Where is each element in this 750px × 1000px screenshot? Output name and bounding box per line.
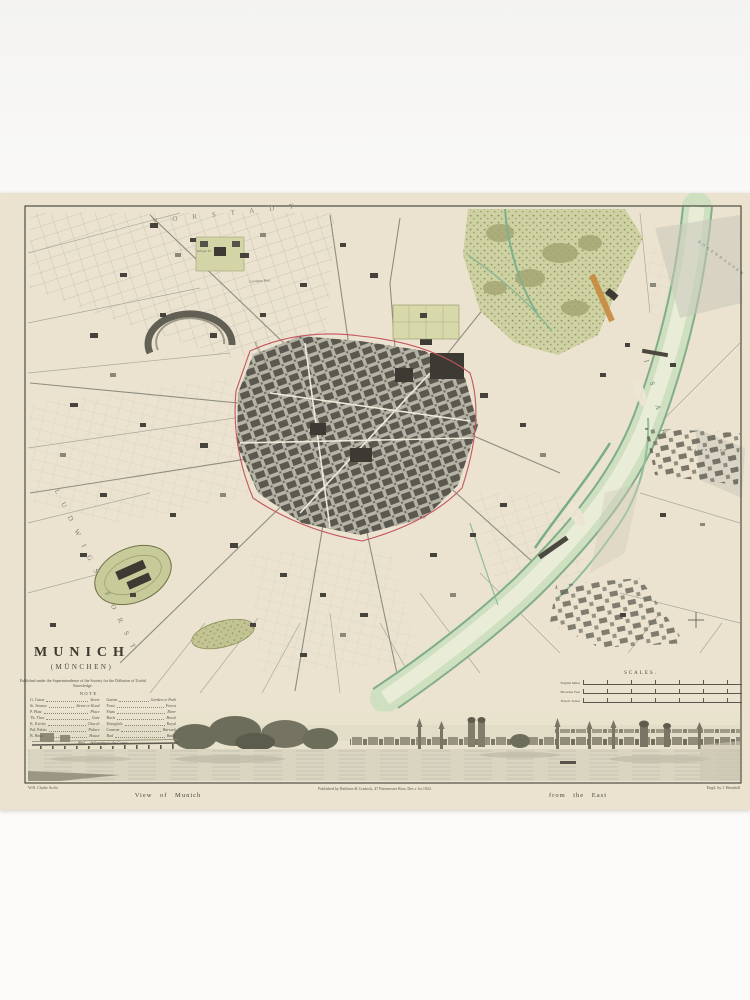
map-title: MUNICH [30, 645, 134, 661]
page: { "map": { "title": "MUNICH", "subtitle"… [0, 0, 750, 1000]
note-row: G. GasseStreet [30, 698, 100, 703]
note-footer: Red .... belonging to the Court. [30, 741, 176, 746]
note-heading: NOTE. [30, 691, 150, 696]
note-row: CaserneBarrack [107, 728, 177, 733]
panorama-title-right: from the East [528, 792, 628, 799]
koenigsplatz [196, 237, 244, 271]
note-column-left: G. GasseStreet St. StrasseStreet or Road… [30, 698, 100, 739]
sduk-imprint: Published under the Superintendence of t… [18, 679, 148, 688]
note-row: Pal. PalaisPalace [30, 728, 100, 733]
raft-boat [560, 761, 576, 764]
scales-heading: SCALES. [540, 671, 742, 677]
note-row: St. StrasseStreet or Road [30, 704, 100, 709]
panorama-engraver-credit: Engd. by J. Henshall [658, 785, 740, 790]
scale-bar: English Miles [540, 680, 742, 685]
scale-ruler [583, 680, 742, 685]
panorama-title-left: View of Munich [118, 792, 218, 799]
map-subtitle: (MÜNCHEN) [30, 663, 134, 671]
photo-background-bottom [0, 810, 750, 1000]
hofgarten [393, 305, 459, 339]
scale-bar: Bavarian Feet [540, 689, 742, 694]
note-column-right: GartenGarden or Park ForstForest FlussRi… [107, 698, 177, 739]
panorama-publisher-imprint: Published by Baldwin & Cradock, 47 Pater… [250, 786, 500, 791]
note-table: G. GasseStreet St. StrasseStreet or Road… [30, 698, 176, 739]
scale-bar: French Toises [540, 698, 742, 703]
note-row: FlussRiver [107, 710, 177, 715]
scales-block: SCALES. English Miles Bavarian Feet Fren… [540, 671, 742, 707]
note-row: KöniglichRoyal [107, 722, 177, 727]
note-row: B. HausHouse [30, 734, 100, 739]
map-sheet: MUNICH (MÜNCHEN) Published under the Sup… [0, 193, 750, 810]
note-row: Th. ThorGate [30, 716, 100, 721]
note-row: BachBrook [107, 716, 177, 721]
scale-ruler [583, 689, 742, 694]
note-row: ForstForest [107, 704, 177, 709]
note-row: P. PlatzPlace [30, 710, 100, 715]
scale-ruler [583, 698, 742, 703]
note-row: BadBaths [107, 734, 177, 739]
note-row: K. KircheChurch [30, 722, 100, 727]
panorama-artist-credit: W.B. Clarke Archt. [28, 785, 59, 790]
photo-background-top [0, 0, 750, 193]
label-haidhausen: HAIDHAUSEN [690, 448, 728, 452]
note-row: GartenGarden or Park [107, 698, 177, 703]
label-koenigsplatz: Königs Pl. [197, 249, 212, 253]
